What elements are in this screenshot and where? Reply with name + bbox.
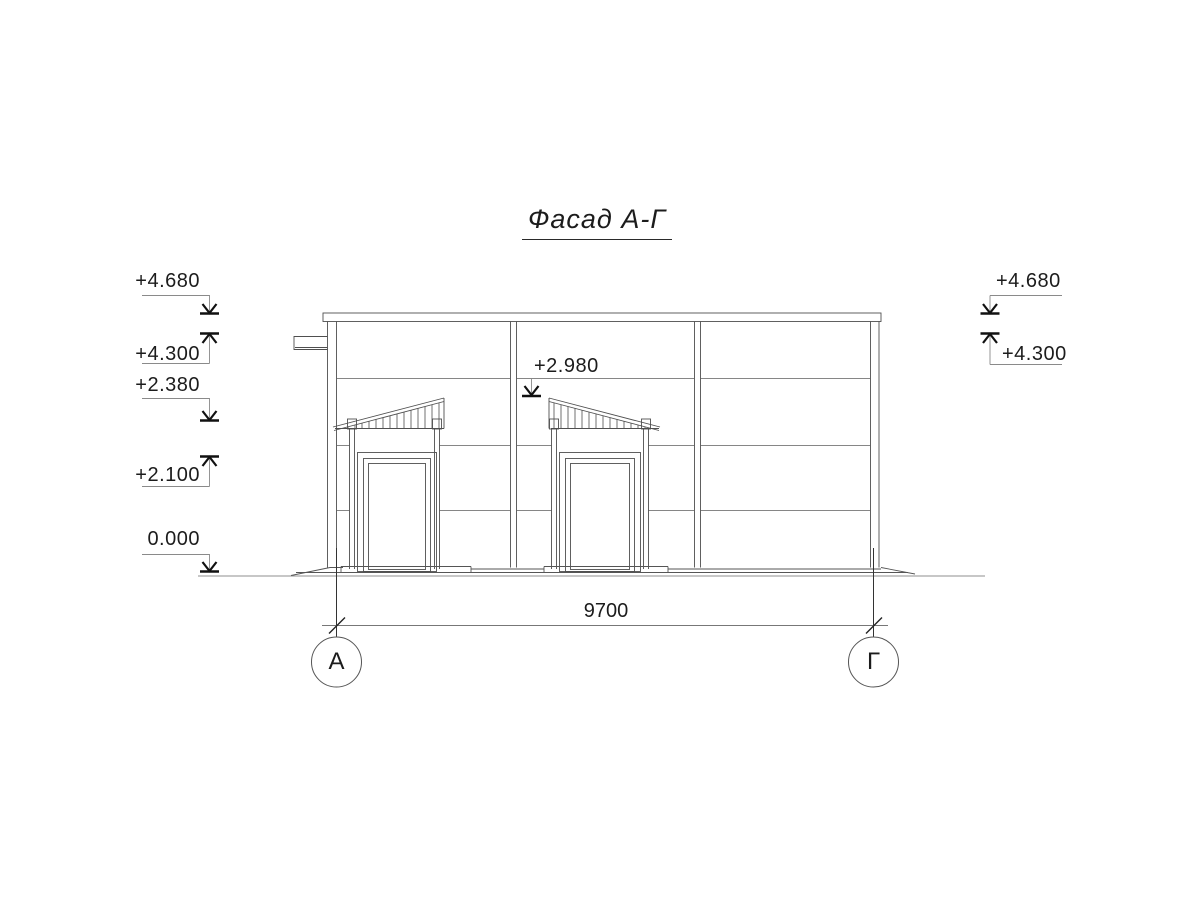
door-2-panel — [571, 464, 630, 570]
elevation-label-left-4300: +4.300 — [130, 344, 200, 364]
axis-lines — [337, 548, 874, 637]
axis-label-g: Г — [851, 650, 896, 674]
panel-joint-lines — [337, 379, 871, 511]
canopy-2 — [549, 398, 660, 431]
level-marker-canopy — [522, 379, 541, 396]
canopy-1-outline — [333, 398, 444, 431]
axis-label-a: А — [314, 650, 359, 674]
door-2-posts — [552, 429, 649, 569]
drawing-title-wrap: Фасад А-Г — [497, 204, 697, 240]
canopy-2-hatch — [554, 403, 645, 429]
elevation-label-left-2380: +2.380 — [130, 375, 200, 395]
elevation-label-left-0000: 0.000 — [130, 529, 200, 549]
level-ticks-right — [981, 314, 1000, 334]
base-apron — [291, 567, 915, 576]
door-1-frame-outer — [358, 453, 437, 572]
canopy-1 — [333, 398, 444, 431]
elevation-label-right-4680: +4.680 — [996, 271, 1066, 291]
building-outline — [294, 313, 881, 568]
door-2-frame-inner — [566, 459, 635, 572]
parapet-band — [323, 313, 881, 322]
door-1-frame-inner — [364, 459, 431, 572]
elevation-label-left-2100: +2.100 — [130, 465, 200, 485]
door-1-panel — [369, 464, 426, 570]
dimension-text-9700: 9700 — [570, 601, 642, 621]
door-2-frame-outer — [560, 453, 641, 572]
elevation-label-canopy-2980: +2.980 — [534, 356, 604, 376]
door-1-post-cap-right — [433, 419, 442, 429]
door-2 — [550, 419, 651, 572]
roof-drain-box — [294, 337, 328, 350]
elevation-label-left-4680: +4.680 — [130, 271, 200, 291]
door-1 — [348, 419, 442, 572]
canopy-2-outline — [549, 398, 660, 431]
drawing-title: Фасад А-Г — [522, 204, 672, 240]
elevation-label-right-4300: +4.300 — [1002, 344, 1072, 364]
facade-linework — [0, 0, 1200, 900]
canopy-1-hatch — [348, 403, 439, 429]
facade-drawing-sheet: Фасад А-Г +4.680 +4.300 +2.380 +2.100 0.… — [0, 0, 1200, 900]
door-1-posts — [350, 429, 440, 569]
